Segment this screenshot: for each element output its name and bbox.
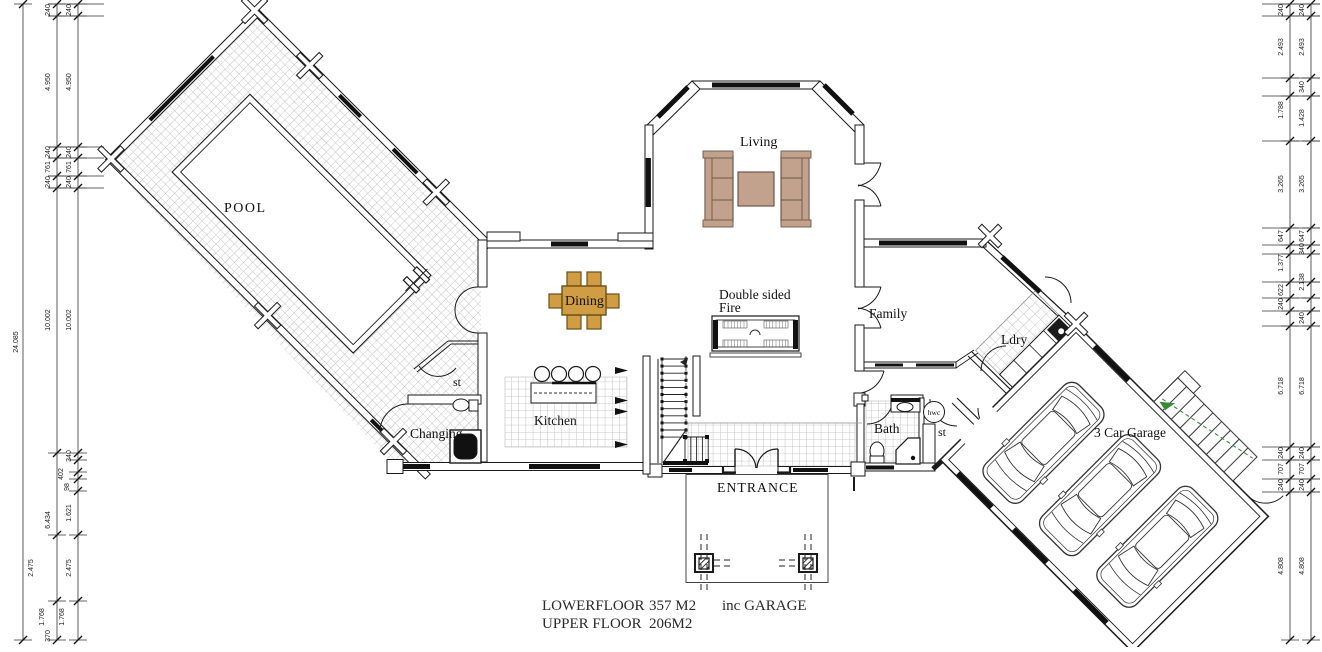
svg-text:6.718: 6.718 <box>1278 377 1285 395</box>
svg-text:647: 647 <box>1299 230 1306 242</box>
svg-text:1.768: 1.768 <box>39 608 46 626</box>
svg-text:240: 240 <box>1299 312 1306 324</box>
svg-text:10.002: 10.002 <box>45 309 52 331</box>
svg-text:Living: Living <box>740 135 777 150</box>
svg-text:Family: Family <box>869 306 908 321</box>
svg-text:Kitchen: Kitchen <box>534 413 577 428</box>
svg-text:340: 340 <box>1299 243 1306 255</box>
svg-text:647: 647 <box>1278 230 1285 242</box>
svg-text:LOWERFLOOR: LOWERFLOOR <box>542 598 645 614</box>
svg-text:240: 240 <box>1278 479 1285 491</box>
svg-text:2.493: 2.493 <box>1299 38 1306 56</box>
svg-text:340: 340 <box>66 450 73 462</box>
svg-text:Bath: Bath <box>874 421 900 436</box>
svg-text:2.475: 2.475 <box>28 559 35 577</box>
svg-text:inc GARAGE: inc GARAGE <box>722 598 807 614</box>
svg-text:3 Car Garage: 3 Car Garage <box>1094 425 1166 440</box>
svg-text:622: 622 <box>1278 284 1285 296</box>
svg-text:ENTRANCE: ENTRANCE <box>717 480 799 495</box>
svg-text:98: 98 <box>64 483 71 491</box>
svg-text:Fire: Fire <box>719 300 741 315</box>
svg-text:240: 240 <box>45 146 52 158</box>
svg-text:st: st <box>453 375 462 389</box>
svg-text:4.808: 4.808 <box>1299 557 1306 575</box>
svg-text:1.377: 1.377 <box>1278 254 1285 272</box>
svg-text:POOL: POOL <box>224 201 267 216</box>
svg-text:st: st <box>938 425 947 439</box>
svg-text:240: 240 <box>66 176 73 188</box>
svg-text:240: 240 <box>1278 298 1285 310</box>
svg-text:2.475: 2.475 <box>66 559 73 577</box>
svg-text:240: 240 <box>1299 4 1306 16</box>
svg-text:240: 240 <box>66 4 73 16</box>
svg-text:6.718: 6.718 <box>1299 377 1306 395</box>
svg-text:10.002: 10.002 <box>66 309 73 331</box>
svg-text:3.265: 3.265 <box>1299 175 1306 193</box>
svg-text:761: 761 <box>66 161 73 173</box>
svg-text:4.950: 4.950 <box>66 73 73 91</box>
svg-text:Dining: Dining <box>565 294 604 309</box>
svg-text:240: 240 <box>66 146 73 158</box>
svg-text:370: 370 <box>45 630 52 642</box>
svg-text:hwc: hwc <box>928 408 941 417</box>
svg-text:Changing: Changing <box>410 426 463 441</box>
svg-text:240: 240 <box>45 4 52 16</box>
svg-text:206M2: 206M2 <box>649 616 692 632</box>
svg-text:240: 240 <box>1299 479 1306 491</box>
svg-text:UPPER FLOOR: UPPER FLOOR <box>542 616 642 632</box>
svg-text:707: 707 <box>1278 463 1285 475</box>
svg-text:24.085: 24.085 <box>13 331 20 353</box>
svg-text:1.621: 1.621 <box>66 504 73 522</box>
svg-text:240: 240 <box>1278 447 1285 459</box>
svg-text:240: 240 <box>1299 447 1306 459</box>
svg-text:4.950: 4.950 <box>45 73 52 91</box>
svg-text:Ldry: Ldry <box>1001 332 1027 347</box>
svg-text:240: 240 <box>1278 4 1285 16</box>
svg-text:1.768: 1.768 <box>59 608 66 626</box>
svg-text:340: 340 <box>1299 81 1306 93</box>
svg-text:4.808: 4.808 <box>1278 557 1285 575</box>
svg-text:402: 402 <box>58 468 65 480</box>
svg-text:1.428: 1.428 <box>1299 109 1306 127</box>
svg-text:761: 761 <box>45 161 52 173</box>
svg-text:2.493: 2.493 <box>1278 38 1285 56</box>
svg-text:707: 707 <box>1299 463 1306 475</box>
svg-text:1.788: 1.788 <box>1278 101 1285 119</box>
svg-text:240: 240 <box>45 176 52 188</box>
svg-text:2.138: 2.138 <box>1299 273 1306 291</box>
svg-text:3.265: 3.265 <box>1278 175 1285 193</box>
svg-text:6.434: 6.434 <box>45 511 52 529</box>
svg-text:357 M2: 357 M2 <box>649 598 696 614</box>
